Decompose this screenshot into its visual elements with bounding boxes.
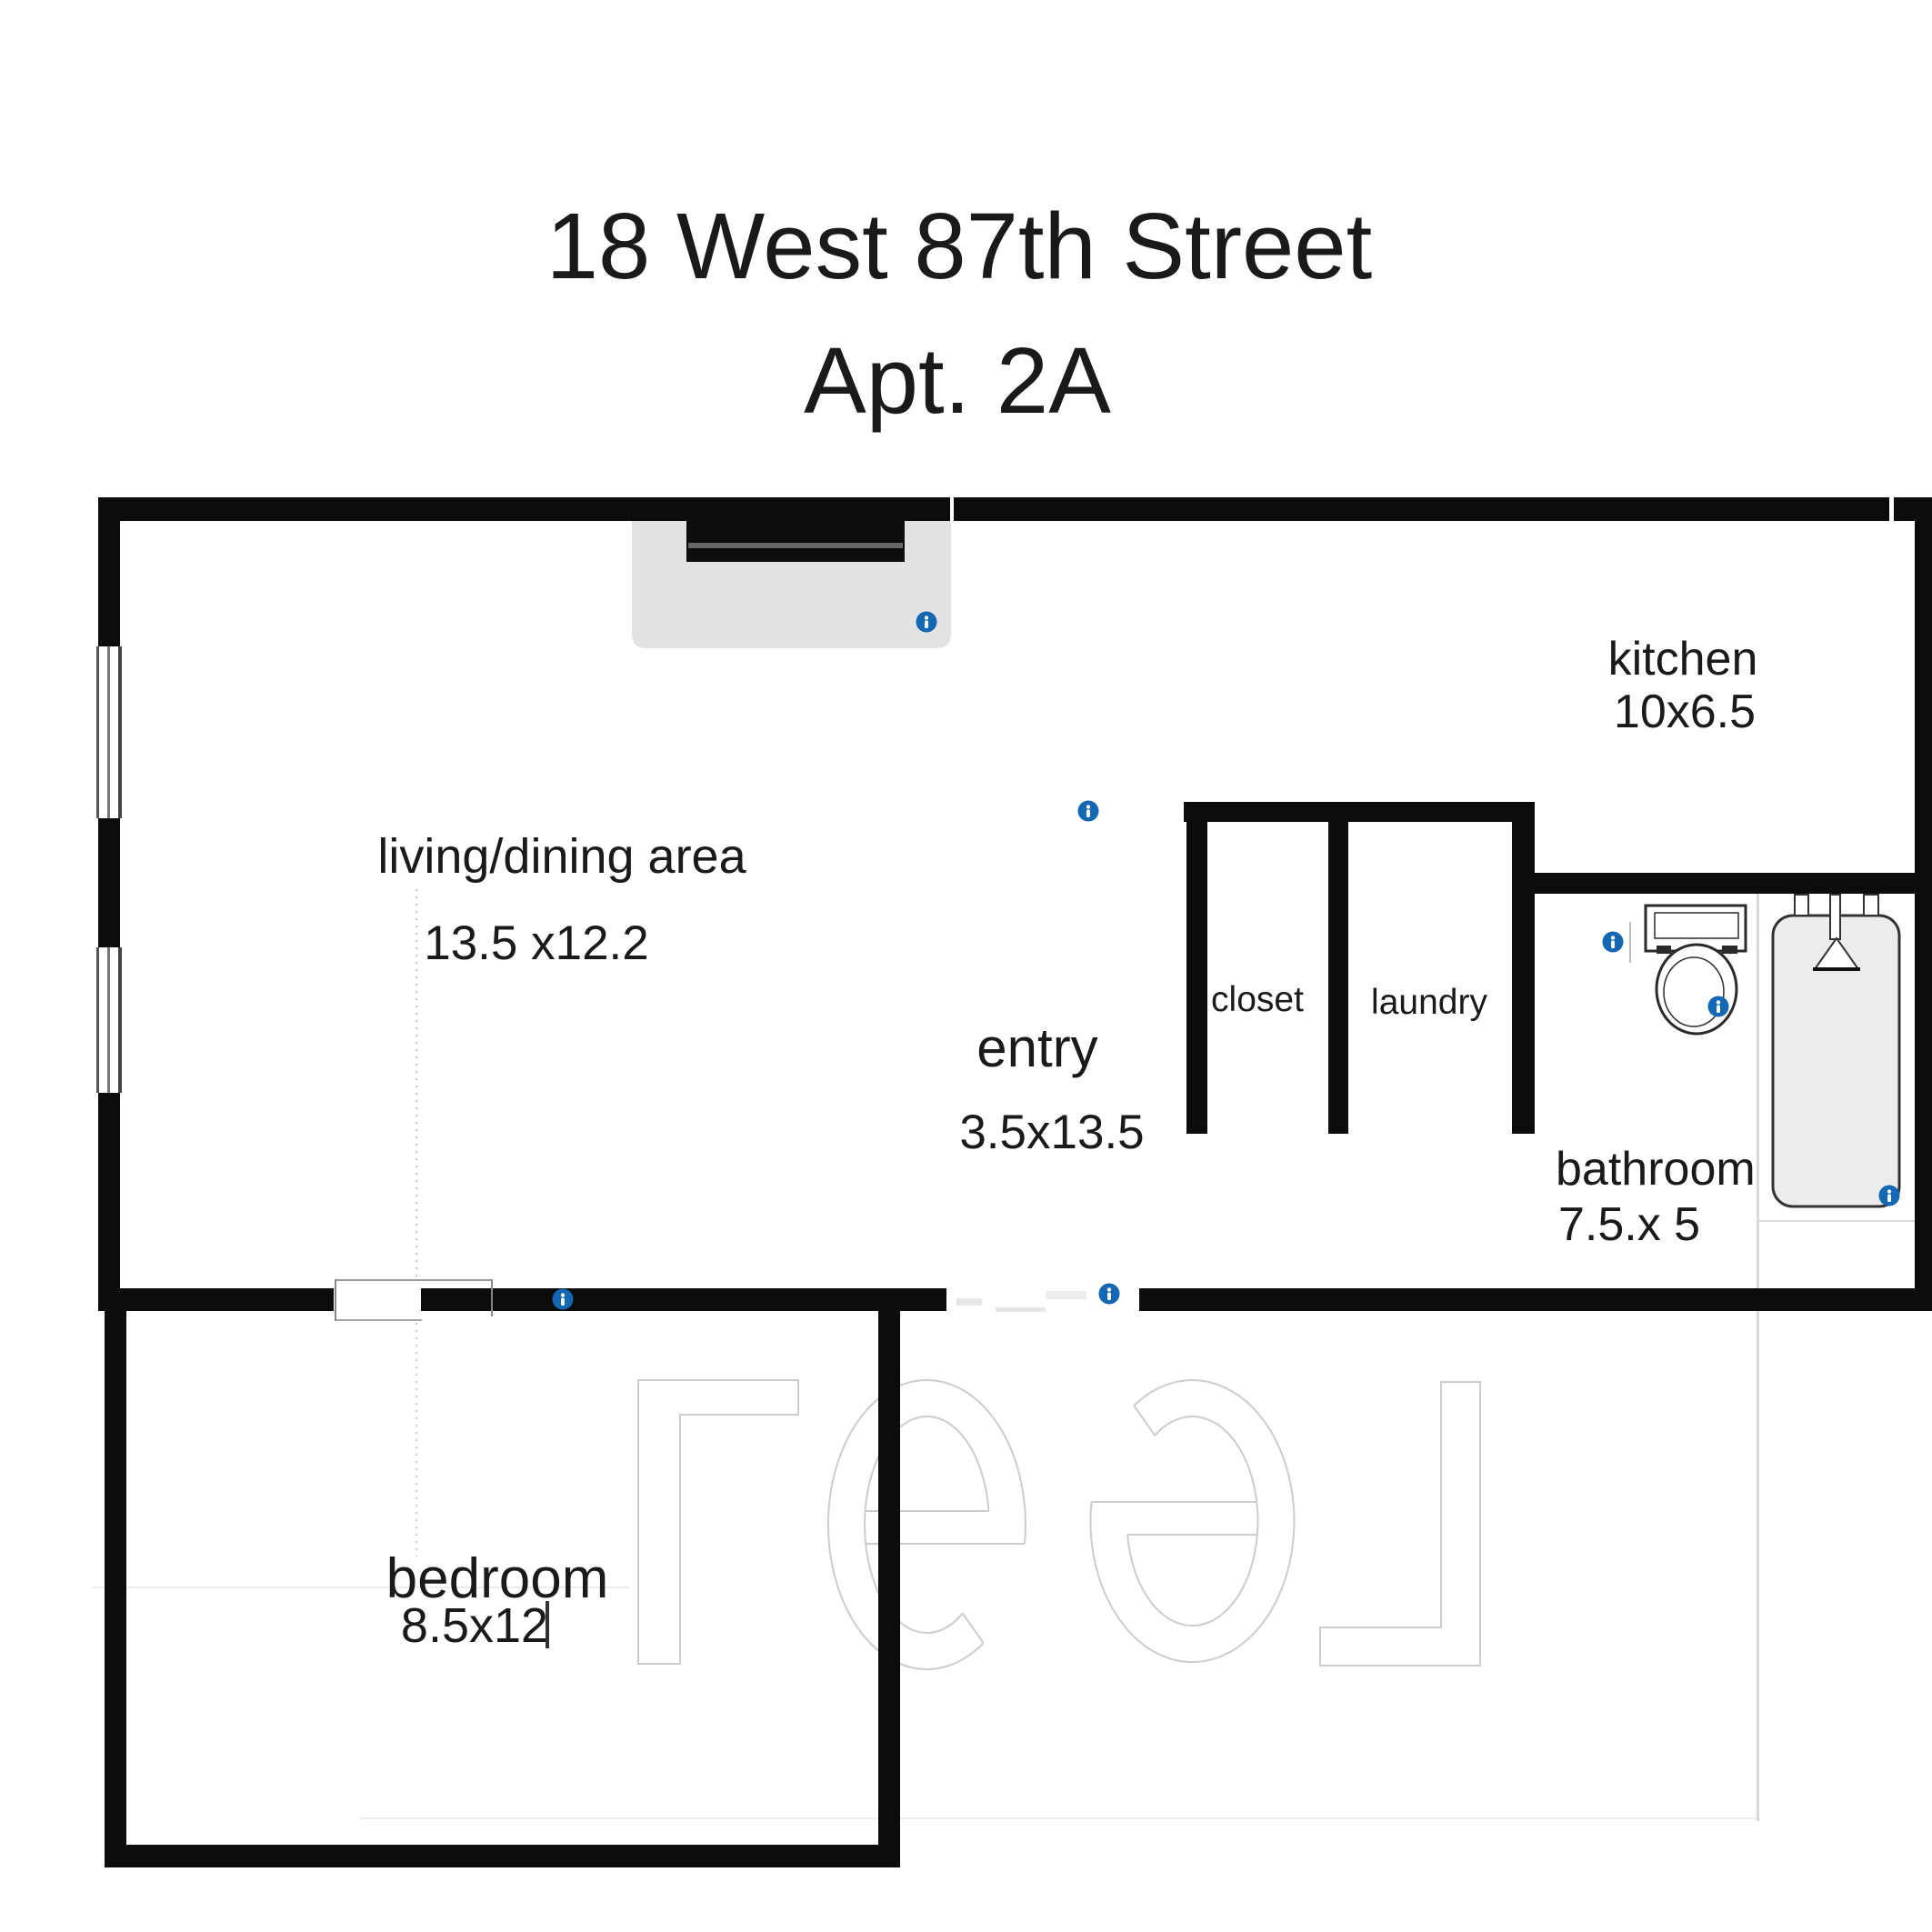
svg-text:Apt. 2A: Apt. 2A [804,328,1111,433]
svg-text:7.5.x 5: 7.5.x 5 [1558,1198,1700,1251]
svg-text:bathroom: bathroom [1556,1143,1756,1196]
svg-text:18 West 87th Street: 18 West 87th Street [546,194,1372,298]
svg-text:closet: closet [1211,980,1304,1019]
svg-text:living/dining area: living/dining area [377,829,746,884]
svg-text:10x6.5: 10x6.5 [1614,686,1756,738]
svg-text:kitchen: kitchen [1608,633,1758,686]
svg-text:entry: entry [976,1017,1097,1078]
svg-text:13.5 x12.2: 13.5 x12.2 [424,916,649,970]
svg-text:laundry: laundry [1371,983,1487,1022]
svg-text:3.5x13.5: 3.5x13.5 [959,1106,1144,1159]
svg-text:8.5x12: 8.5x12 [401,1598,548,1653]
